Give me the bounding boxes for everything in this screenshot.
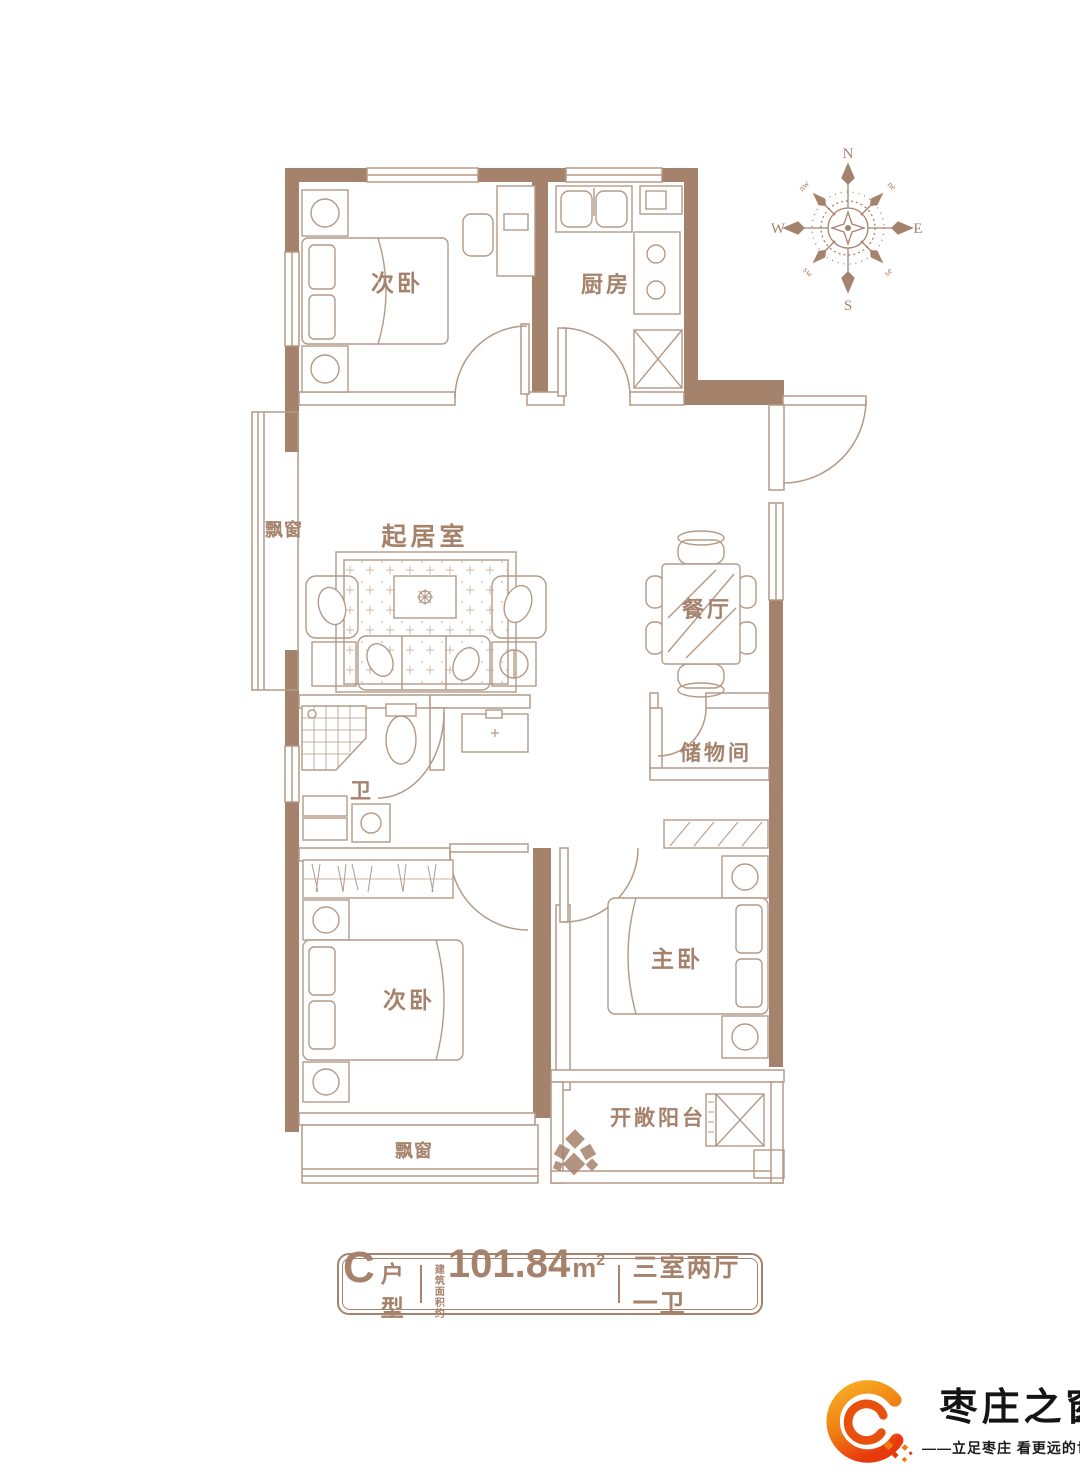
- logo-tagline: ——立足枣庄 看更远的世界——: [922, 1438, 1080, 1458]
- furniture-bathroom: [302, 704, 528, 842]
- logo-e-icon: [818, 1375, 914, 1471]
- divider: [420, 1265, 422, 1303]
- compass-se: se: [882, 266, 894, 278]
- compass-n: N: [843, 146, 854, 162]
- compass-w: W: [771, 221, 786, 237]
- unit-area: 建筑 面积约 101.84 m 2: [435, 1244, 605, 1324]
- furniture-living-room: [306, 552, 546, 692]
- room-label-storage-room: 储物间: [680, 737, 752, 767]
- room-label-kitchen: 厨房: [581, 267, 631, 299]
- unit-type-letter: C: [343, 1246, 375, 1290]
- logo-name: 枣庄之窗: [939, 1388, 1080, 1430]
- room-label-bedroom-top: 次卧: [371, 264, 423, 298]
- unit-info-inner: C 户型 建筑 面积约 101.84 m 2 三室两厅一卫: [342, 1258, 758, 1310]
- room-label-dining-room: 餐厅: [682, 592, 732, 624]
- unit-area-value: 101.84: [448, 1244, 570, 1284]
- unit-area-unit: m: [572, 1253, 596, 1284]
- compass-e: E: [913, 221, 922, 237]
- room-label-bathroom: 卫: [350, 775, 374, 805]
- room-label-master-bedroom: 主卧: [651, 940, 703, 974]
- site-logo: 枣庄之窗 ——立足枣庄 看更远的世界——: [818, 1372, 1074, 1474]
- unit-info-bar: C 户型 建筑 面积约 101.84 m 2 三室两厅一卫: [337, 1253, 763, 1315]
- divider: [618, 1265, 620, 1303]
- unit-type: C 户型: [343, 1246, 407, 1323]
- bay-window-left-structure: [252, 412, 299, 690]
- room-label-bay-window-bottom: 飘窗: [395, 1137, 433, 1163]
- unit-area-superscript: 2: [596, 1252, 605, 1270]
- compass-ne: ne: [886, 179, 899, 192]
- floorplan-page: N S W E nw ne sw se 次卧 厨房 飘窗 起居室 餐厅 储物间 …: [0, 0, 1080, 1484]
- room-label-bedroom-bottom: 次卧: [383, 981, 435, 1015]
- unit-layout: 三室两厅一卫: [633, 1248, 757, 1320]
- compass-s: S: [844, 298, 852, 314]
- room-label-living-room: 起居室: [381, 517, 468, 553]
- compass-icon: N S W E nw ne sw se: [771, 146, 923, 314]
- unit-area-prefix-line1: 建筑: [435, 1265, 445, 1287]
- room-label-balcony: 开敞阳台: [610, 1102, 706, 1132]
- compass-nw: nw: [796, 178, 811, 193]
- unit-area-prefix-line2: 面积约: [435, 1287, 445, 1320]
- unit-area-prefix: 建筑 面积约: [435, 1265, 445, 1320]
- furniture-master-bedroom: [608, 820, 768, 1058]
- compass-sw: sw: [801, 265, 815, 279]
- unit-type-suffix: 户型: [381, 1255, 408, 1323]
- logo-text-block: 枣庄之窗 ——立足枣庄 看更远的世界——: [922, 1388, 1080, 1458]
- room-label-bay-window-left: 飘窗: [265, 516, 303, 542]
